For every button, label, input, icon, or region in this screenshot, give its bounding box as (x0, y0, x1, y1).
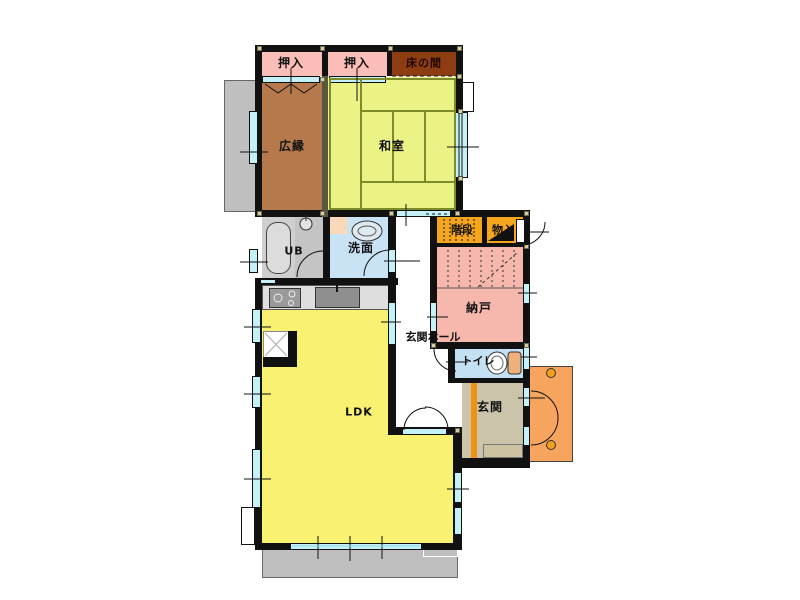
pillar-mark (431, 343, 436, 348)
label-ldk: LDK (345, 407, 373, 418)
label-nando: 納戸 (466, 302, 492, 314)
door-nando (430, 302, 437, 332)
window-ldk-east-a (454, 472, 462, 503)
wall-mid-bottom (255, 278, 398, 285)
label-oshiire-right: 押入 (344, 57, 370, 69)
opening-mid-bottom (260, 279, 276, 284)
room-nando (437, 247, 523, 342)
label-monoire: 物入 (492, 225, 514, 236)
label-unit-bath: UB (284, 246, 303, 257)
pillar-mark (455, 211, 460, 216)
fusuma-oshiire-right (329, 76, 386, 83)
pillar-mark (257, 46, 262, 51)
label-genkan: 玄関 (477, 401, 503, 413)
floor-hatch (263, 331, 289, 358)
wall-ub-senmen (323, 217, 330, 278)
wall-kaidan-nando (437, 243, 523, 247)
door-senmen (388, 249, 396, 273)
window-nando-east (523, 283, 530, 304)
pillar-mark (320, 46, 325, 51)
shutter-box-ldk (241, 507, 255, 545)
label-oshiire-left: 押入 (278, 57, 304, 69)
genkan-step-strip (471, 382, 477, 458)
floor-plan-canvas: 押入 押入 床の間 広縁 和室 UB 洗面 階段 物入 納戸 玄関ホール トイレ… (0, 0, 800, 600)
door-genkan-upper (523, 387, 530, 407)
pillar-mark (388, 46, 393, 51)
pillar-mark (457, 74, 462, 79)
wall-toilet-bottom (448, 378, 530, 383)
wall-genkan-bottom (453, 458, 530, 468)
pillar-mark (524, 343, 529, 348)
window-hiroen-west (249, 111, 258, 164)
pillar-mark (257, 211, 262, 216)
door-kitchen-hall (388, 302, 396, 345)
window-ldk-west-c (252, 449, 261, 508)
label-toilet: トイレ (462, 356, 495, 367)
pillar-mark (524, 211, 529, 216)
window-ub-west (249, 249, 258, 273)
pillar-mark (320, 77, 325, 82)
door-ldk-hall (402, 428, 447, 435)
window-ldk-east-b (454, 507, 462, 535)
pillar-mark (455, 428, 460, 433)
washing-machine-pad (330, 217, 347, 234)
label-hiroen: 広縁 (279, 140, 305, 152)
entrance-porch (528, 366, 573, 462)
label-senmen: 洗面 (348, 242, 374, 254)
window-ldk-west-b (252, 376, 261, 408)
wall-top (255, 45, 463, 52)
pillar-mark (524, 244, 529, 249)
door-monoire-gap (516, 219, 525, 243)
window-ldk-south (290, 543, 422, 550)
label-washitsu: 和室 (379, 140, 405, 152)
door-genkan-lower (523, 426, 530, 446)
pillar-mark (458, 176, 463, 181)
fusuma-oshiire-left (262, 76, 320, 83)
pillar-mark (457, 46, 462, 51)
wall-hiroen-washitsu (322, 76, 328, 217)
terrace-step (423, 549, 458, 557)
pillar-mark (458, 109, 463, 114)
room-ldk-east (388, 435, 453, 543)
pantry-wall-horizontal (263, 357, 297, 367)
wall-kaidan-divider (482, 217, 487, 243)
label-genkan-hall: 玄関ホール (406, 332, 461, 343)
stove (269, 288, 301, 308)
window-ldk-west-a (252, 309, 261, 343)
window-washitsu-east (454, 112, 468, 178)
pillar-mark (320, 211, 325, 216)
shutter-box-washitsu (462, 82, 474, 112)
door-hall-washitsu (396, 210, 451, 217)
genkan-tataki (483, 444, 523, 458)
wall-toilet-left (448, 348, 455, 382)
pillar-mark (389, 211, 394, 216)
label-kaidan: 階段 (451, 225, 473, 236)
label-tokonoma: 床の間 (406, 58, 442, 69)
kitchen-sink (315, 287, 360, 308)
